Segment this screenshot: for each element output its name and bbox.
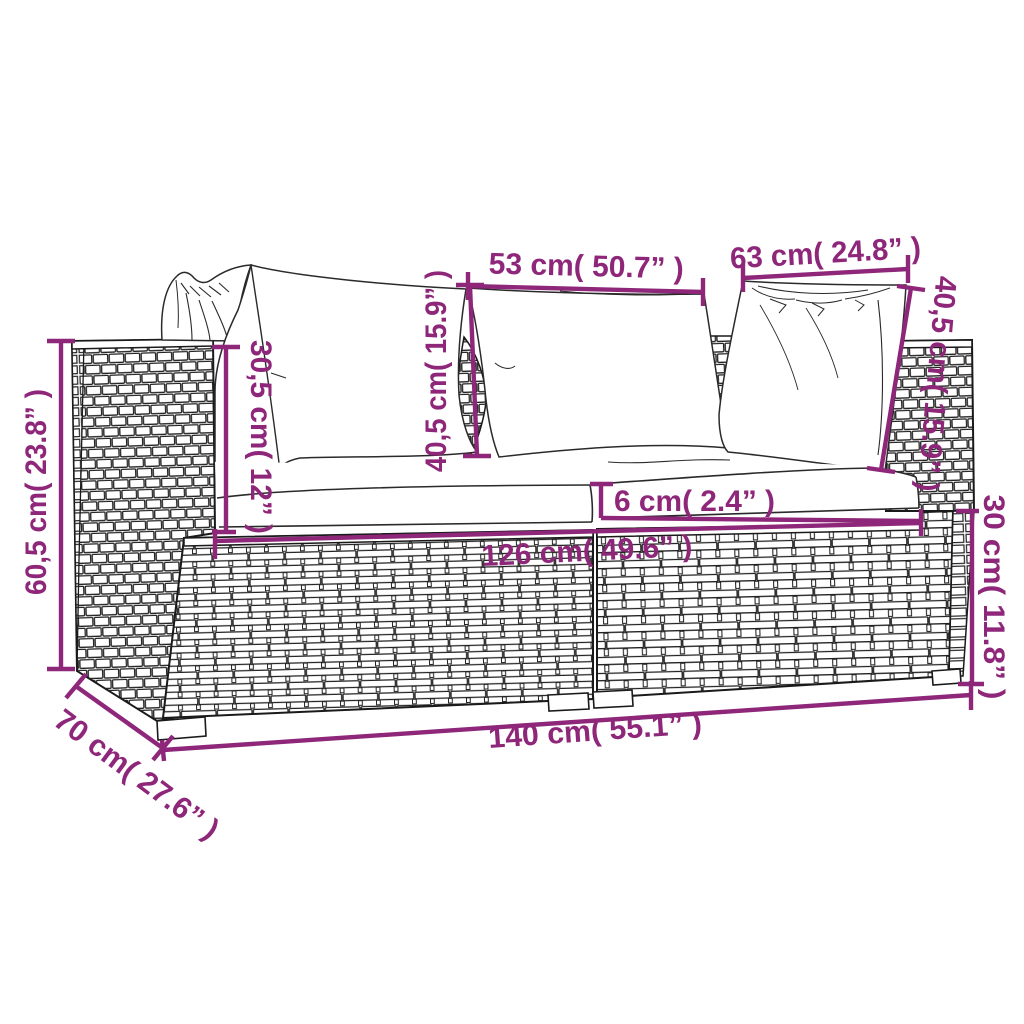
svg-text:40,5 cm( 15.9” ): 40,5 cm( 15.9” ) — [420, 270, 453, 472]
svg-text:6 cm( 2.4” ): 6 cm( 2.4” ) — [614, 485, 775, 518]
svg-text:30,5 cm( 12” ): 30,5 cm( 12” ) — [244, 340, 277, 534]
svg-text:60,5 cm( 23.8” ): 60,5 cm( 23.8” ) — [20, 389, 53, 595]
svg-text:53 cm( 50.7” ): 53 cm( 50.7” ) — [488, 247, 684, 285]
svg-text:30 cm( 11.8” ): 30 cm( 11.8” ) — [977, 495, 1010, 700]
